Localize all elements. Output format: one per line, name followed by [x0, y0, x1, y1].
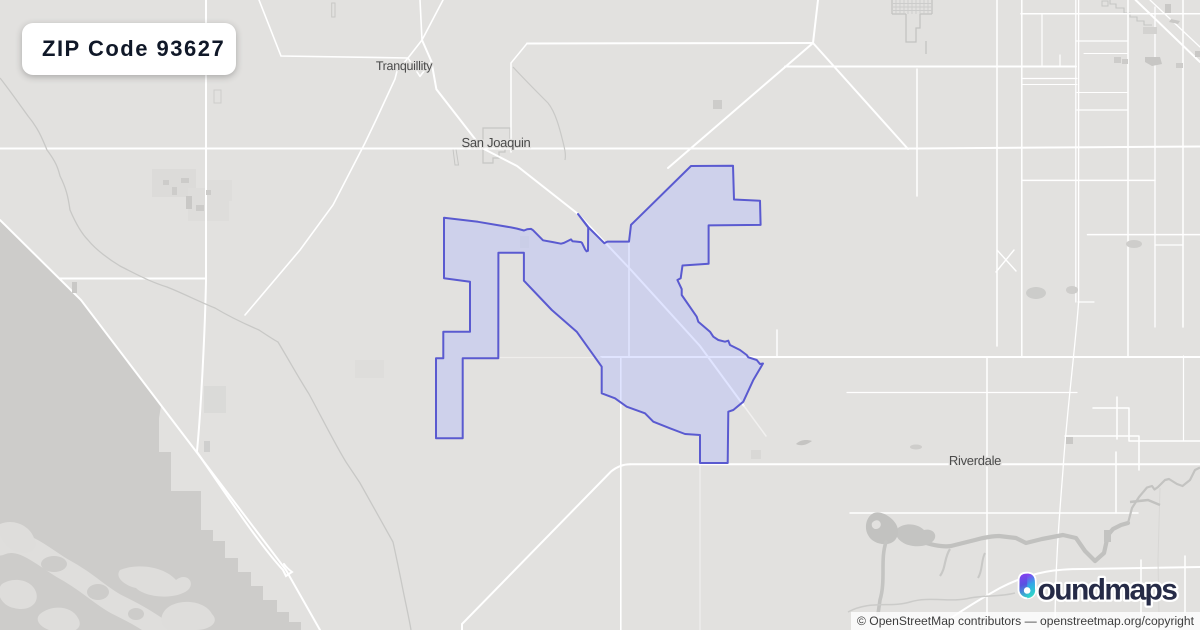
svg-text:Riverdale: Riverdale	[949, 453, 1001, 468]
svg-text:San Joaquin: San Joaquin	[462, 135, 531, 150]
svg-text:Tranquillity: Tranquillity	[376, 59, 433, 73]
svg-text:oundmaps: oundmaps	[1038, 574, 1178, 607]
